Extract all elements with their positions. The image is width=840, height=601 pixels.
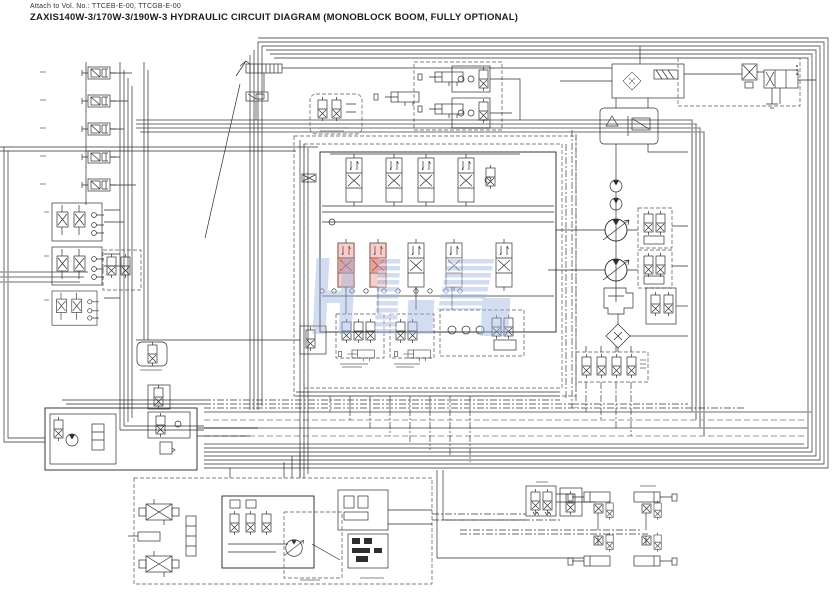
accumulator-pilot-block-bottom-left <box>45 408 258 470</box>
hose-bundle-buses <box>0 38 828 560</box>
axle-lock-cylinder-2 <box>139 551 179 577</box>
axle-lock-cylinder-1 <box>139 499 179 525</box>
steering-priority-circuit-bottom-left <box>128 478 432 584</box>
pilot-gear-pump-1 <box>610 180 622 192</box>
watermark-overlay <box>312 258 512 336</box>
hydraulic-circuit-diagram <box>0 0 840 601</box>
document-page: Attach to Vol. No.: TTCEB-E-00, TTCGB-E-… <box>0 0 840 601</box>
return-filter-tank-block <box>600 108 688 180</box>
small-valve-block-right <box>646 288 688 324</box>
outrigger-blade-pilot-boxes <box>432 482 656 534</box>
oil-cooler-with-bypass-check <box>560 46 684 108</box>
pump-regulator-blocks <box>638 208 688 288</box>
relief-valve-block-top-right <box>678 58 816 108</box>
pilot-shutoff-dashed-block <box>103 250 141 290</box>
solenoid-unit-top-right <box>684 64 764 88</box>
outrigger-blade-cylinders <box>568 492 677 566</box>
remote-pilot-valve-group-left <box>44 203 141 325</box>
hand-lever-and-linkage-top-center <box>236 61 282 120</box>
four-spool-solenoid-manifold <box>576 346 648 436</box>
pump-group-right <box>548 180 688 302</box>
accumulator-pilot-block-mid-left <box>137 342 170 409</box>
pilot-solenoid-valve-bank-left <box>40 62 136 205</box>
suction-filter <box>606 324 688 352</box>
hydraulic-oil-tank <box>604 288 633 324</box>
